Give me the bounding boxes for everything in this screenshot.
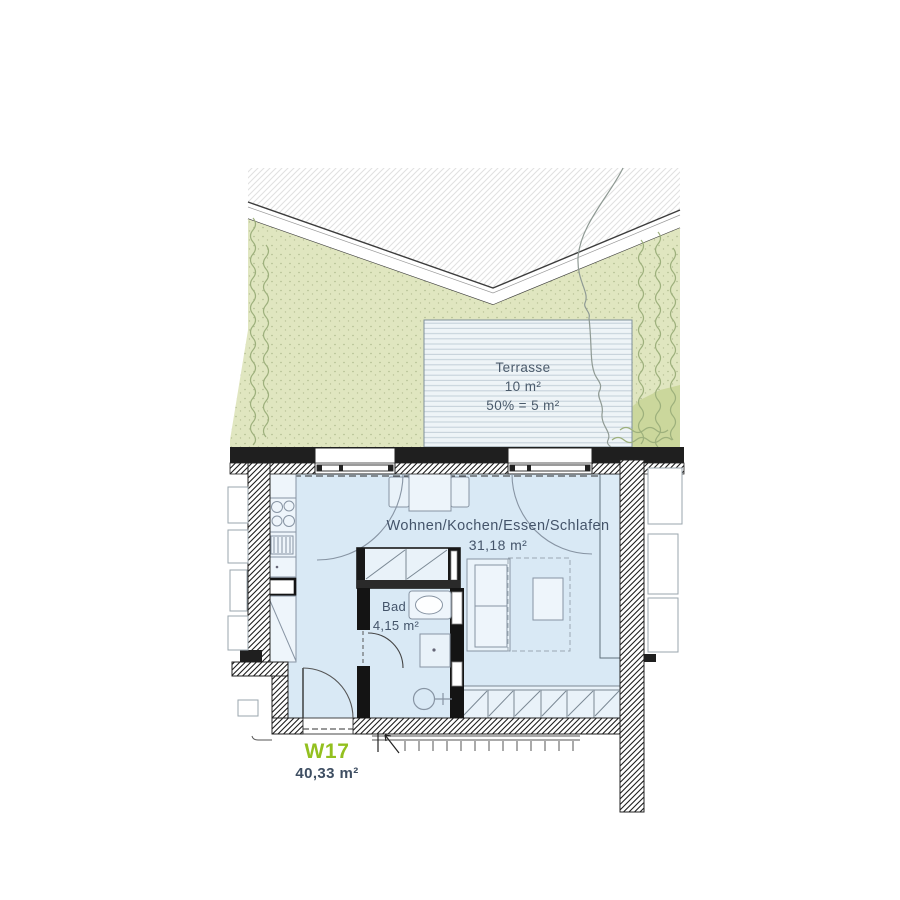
living-room-name: Wohnen/Kochen/Essen/Schlafen [387,518,610,534]
bath-name: Bad [382,599,406,614]
railing-ticks [405,741,573,751]
balcony-railing [252,736,580,751]
side-table [533,578,563,620]
living-room-area: 31,18 m² [469,537,527,553]
left-wall [248,463,270,662]
site-area: Terrasse 10 m² 50% = 5 m² [230,168,680,447]
right-wall [620,460,644,812]
floor-plan-drawing: Terrasse 10 m² 50% = 5 m² [0,0,900,900]
dining-table [409,469,451,511]
window-door-right [508,448,592,474]
closet-row [462,686,620,718]
terrace-name: Terrasse [496,360,551,375]
unit-id-label: W17 [305,740,350,763]
chair-right [451,477,469,507]
terrace-area: 10 m² [505,379,542,394]
kitchen-block [268,472,296,662]
terrace-note: 50% = 5 m² [486,398,560,413]
floor-plan-page: Terrasse 10 m² 50% = 5 m² [0,0,900,900]
chair-left [389,477,409,507]
bath-area: 4,15 m² [373,618,420,633]
terrace-deck: Terrasse 10 m² 50% = 5 m² [424,320,632,447]
shower-icon [420,634,450,667]
washbasin-icon [409,591,451,619]
unit-area-label: 40,33 m² [295,765,358,782]
oven-icon [269,579,295,595]
tall-cabinet [268,596,296,662]
duct-shaft [600,474,620,658]
window-door-left [315,448,395,474]
wardrobe [357,548,460,588]
